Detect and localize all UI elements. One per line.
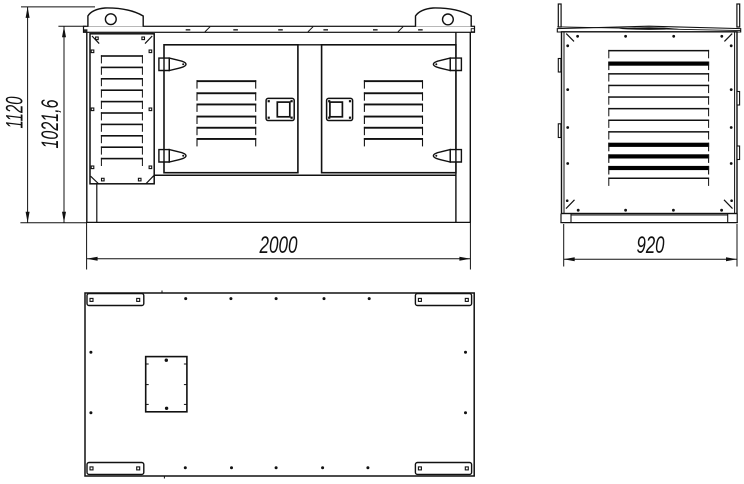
svg-text:1120: 1120 [1,96,28,128]
svg-text:2000: 2000 [259,232,298,259]
svg-text:1021,6: 1021,6 [37,99,64,148]
svg-text:920: 920 [637,232,665,259]
